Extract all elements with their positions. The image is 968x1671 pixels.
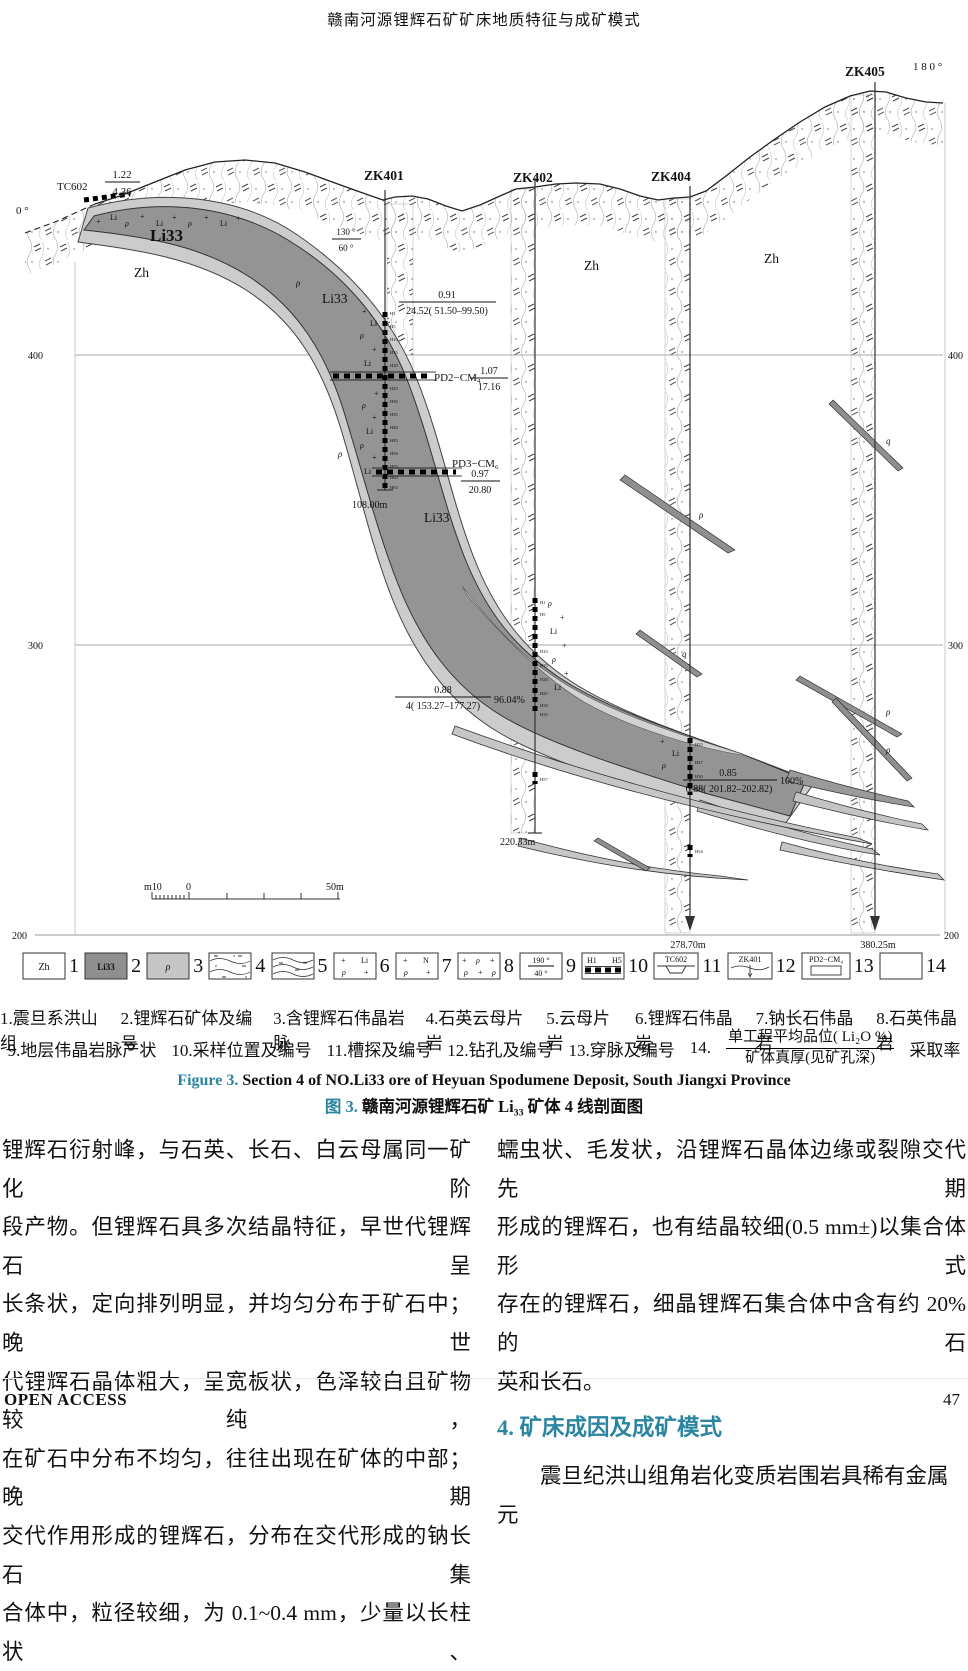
section-heading: 4. 矿床成因及成矿模式 [497,1406,966,1450]
sample-label: H57 [540,777,548,782]
legend-box-label: ZK401 [738,955,761,964]
legend-num: 6 [380,955,390,978]
body-line: 合体中，粒径较细，为 0.1~0.4 mm，少量以长柱状、 [2,1594,471,1671]
ore-symbol: Li [220,219,228,228]
scale-zero-label: 0 [186,882,191,893]
legend-num: 9 [566,955,576,978]
legend-sym: ρ [463,968,468,977]
legend-num: 2 [131,955,141,978]
vein-label-q: q [682,649,687,659]
ore-symbol: Li [156,219,164,228]
legend-box-label: TC602 [665,955,687,964]
scale-bar: m10 0 50m [144,882,344,899]
ore-symbol: + [374,389,379,398]
sample-label: H10 [540,649,548,654]
ore-symbol: Li [370,319,378,328]
legend-sym: + [462,956,467,965]
legend-box-attitude: 190 °40 ° [519,952,563,980]
legend-sym: ρ [403,968,408,977]
sample-label: H15 [540,663,548,668]
vein-label-rho: ρ [885,745,891,755]
sample-label: H15 [390,350,398,355]
sample-label: H27 [695,760,703,765]
page-number: 47 [943,1390,960,1410]
sample-label: H54 [695,849,703,854]
sample-label: H25 [540,691,548,696]
sample-label: H5 [390,324,396,329]
sample-label: H50 [390,451,398,456]
borehole-label-zk404: ZK404 [651,169,691,184]
dip-num: 130 ° [336,227,356,237]
grade-num: 1.22 [112,169,131,181]
body-line: 锂辉石衍射峰，与石英、长石、白云母属同一矿化阶 [2,1131,471,1208]
legend-num: 8 [504,955,514,978]
cross-section-figure: ZK401 ZK402 ZK404 ZK405 TC602 0 ° 1 8 0 … [0,50,968,955]
legend-caption: 11.槽探及编号 [327,1036,433,1061]
sample-label: H5 [540,612,546,617]
rock-column-zk405 [851,95,875,933]
legend-box-label: PD2−CM₄ [809,955,843,964]
vein-label-rho: ρ [698,510,704,520]
ore-symbol: ρ [359,331,364,340]
vein-label-rho: ρ [885,707,891,717]
body-line: 段产物。但锂辉石具多次结晶特征，早世代锂辉石呈 [2,1208,471,1285]
sample-label: H30 [390,399,398,404]
legend-item-8: +ρ+ρ+ρ 8 [457,952,514,980]
legend-frac-suffix: 采取率 [909,1036,960,1061]
body-line: 形成的锂辉石，也有结晶较细(0.5 mm±)以集合体形式 [497,1208,966,1285]
figure-caption-zh: 图 3. 赣南河源锂辉石矿 Li₃₃ 矿体 4 线剖面图 [0,1093,968,1117]
legend-box-albite-pegmatite: +Nρ+ [395,952,439,980]
legend-captions-row2: 9.地层伟晶岩脉产状 10.采样位置及编号 11.槽探及编号 12.钻孔及编号 … [0,1028,968,1068]
legend-sym: Li [361,956,369,965]
ore-symbol: + [372,453,377,462]
vein-label-q: q [886,436,891,446]
legend-item-7: +Nρ+ 7 [395,952,452,980]
legend-row: Zh 1 Li33 2 ρ 3 4 5 +Liρ+ 6 +Nρ+ 7 +ρ+ρ+… [22,952,946,980]
elev-200-left: 200 [12,931,27,942]
legend-box-mica-schist [271,952,315,980]
recovery-pct: 96.04% [494,695,525,706]
legend-caption: 9.地层伟晶岩脉产状 [8,1036,157,1061]
legend-box-drillhole: ZK401 [727,952,773,980]
legend-caption: 10.采样位置及编号 [171,1036,311,1061]
sample-label: H30 [540,703,548,708]
figure-caption-zh-text: 赣南河源锂辉石矿 Li₃₃ 矿体 4 线剖面图 [358,1097,643,1116]
grade-pd3: 0.97 20.80 [461,469,500,496]
legend-box-label: Zh [38,962,49,973]
legend-box-li33: Li33 [84,952,128,980]
legend-num: 12 [776,955,796,978]
legend-item-10: H1H5 10 [581,952,648,980]
ore-label-li33: Li33 [322,291,348,306]
sample-label: H55 [390,464,398,469]
grade-den: 4( 153.27–177.27) [406,701,480,712]
ore-label-li33: Li33 [424,510,450,525]
legend-item-5: 5 [271,952,328,980]
stratum-zh: Zh [584,258,599,273]
legend-caption: 14. [690,1038,711,1058]
ore-symbol: + [172,213,177,222]
ore-symbol: Li [554,683,562,692]
body-line: 交代作用形成的锂辉石，分布在交代形成的钠长石集 [2,1517,471,1594]
ore-symbol: + [562,641,567,650]
ore-symbol: ρ [661,761,666,770]
sample-label: H35 [540,712,548,717]
sample-label: H45 [390,438,398,443]
legend-num: 13 [854,955,874,978]
figure-caption-en-text: Section 4 of NO.Li33 ore of Heyuan Spodu… [238,1072,790,1089]
legend-num: 14 [926,955,946,978]
elev-300-right: 300 [948,641,963,652]
elev-400-left: 400 [28,351,43,362]
ore-symbol: Li [672,749,680,758]
legend-item-4: 4 [208,952,265,980]
legend-frac-top: 190 ° [532,956,549,965]
figure-caption-en: Figure 3. Section 4 of NO.Li33 ore of He… [0,1072,968,1090]
legend-item-14: 14 [879,952,946,980]
legend-sym: + [341,956,346,965]
grade-num: 0.88 [434,685,452,696]
ore-symbol: ρ [359,441,364,450]
grade-den: 24.52( 51.50–99.50) [406,306,488,317]
sample-label: H40 [390,425,398,430]
legend-sym: + [426,968,431,977]
legend-box-grade [879,952,923,980]
body-column-right: 蠕虫状、毛发状，沿锂辉石晶体边缘或裂隙交代先期 形成的锂辉石，也有结晶较细(0.… [497,1131,966,1534]
legend-item-1: Zh 1 [22,952,79,980]
ore-symbol: + [660,737,665,746]
legend-frac-bottom: 40 ° [534,969,547,978]
sample-label: H63 [390,485,398,490]
grade-den: 20.80 [469,485,492,496]
legend-box-adit: PD2−CM₄ [801,952,851,980]
legend-frac-bottom: 矿体真厚(见矿孔深) [745,1050,875,1066]
legend-frac-top: 单工程平均品位( Li₂O %) [726,1028,894,1049]
borehole-label-zk401: ZK401 [364,168,404,183]
depth-zk401: 108.00m [352,500,388,511]
body-line: 震旦纪洪山组角岩化变质岩围岩具稀有金属元 [497,1457,966,1534]
borehole-label-zk402: ZK402 [513,170,553,185]
legend-item-6: +Liρ+ 6 [333,952,390,980]
legend-box-spodumene-pegmatite: +Liρ+ [333,952,377,980]
depth-zk405: 380.25m [860,940,896,951]
ore-symbol: ρ [547,599,552,608]
scale-left-label: m10 [144,882,162,893]
legend-sym: + [403,956,408,965]
ore-symbol: + [372,345,377,354]
ore-symbol: ρ [361,401,366,410]
stratum-zh: Zh [764,251,779,266]
page-title: 赣南河源锂辉石矿矿床地质特征与成矿模式 [0,8,968,30]
sample-labels-zk401: H1 H5 H10 H15 H20 H25 H30 H35 H40 H45 H5… [390,311,398,490]
ore-symbol: + [140,212,145,221]
ore-symbol: Li [364,467,372,476]
legend-num: 4 [255,955,265,978]
body-line: 长条状，定向排列明显，并均匀分布于矿石中；晚世 [2,1285,471,1362]
elev-400-right: 400 [948,351,963,362]
angle-left: 0 ° [16,205,29,217]
grade-num: 0.91 [438,290,456,301]
ore-symbol: + [564,669,569,678]
ore-symbol: ρ [551,655,556,664]
grade-num: 0.85 [719,768,737,779]
sample-label: H60 [390,475,398,480]
ore-symbol: ρ [124,219,129,228]
depth-zk402: 220.33m [500,837,536,848]
ore-symbol: Li [366,427,374,436]
sample-label: H25 [695,742,703,747]
sample-label: H20 [390,363,398,368]
legend-sym: + [478,968,483,977]
legend-num: 3 [193,955,203,978]
sample-label: H10 [390,337,398,342]
legend-sym: ρ [475,956,480,965]
legend-box-quartz-pegmatite: +ρ+ρ+ρ [457,952,501,980]
sample-label: H30 [695,774,703,779]
sample-label: H1 [540,600,546,605]
vein-label-rho: ρ [295,278,301,288]
legend-item-11: TC602 11 [653,952,721,980]
angle-right: 1 8 0 ° [913,61,942,73]
ore-symbol: Li [110,213,118,222]
legend-sym: ρ [491,968,496,977]
sample-label: H35 [390,412,398,417]
legend-sym: ρ [341,968,346,977]
ore-symbol: ρ [187,219,192,228]
recovery-pct: 100% [780,776,803,787]
legend-item-3: ρ 3 [146,952,203,980]
footer-open-access: OPEN ACCESS [4,1390,127,1410]
ore-symbol: + [372,413,377,422]
ore-body [78,194,928,855]
page: { "page": { "header_title": "赣南河源锂辉石矿矿床地… [0,0,968,1412]
ore-symbol: + [560,613,565,622]
legend-sym: H5 [612,956,622,965]
rock-column-zk404 [665,199,690,933]
legend-num: 5 [318,955,328,978]
legend-box-quartz-mica-schist [208,952,252,980]
legend-grade-fraction: 单工程平均品位( Li₂O %)矿体真厚(见矿孔深) [726,1028,894,1068]
legend-num: 1 [69,955,79,978]
sample-label: H25 [390,386,398,391]
legend-box-sampling: H1H5 [581,952,625,980]
footer-rule [0,1378,968,1379]
legend-box-label: ρ [165,962,171,973]
sample-label: H1 [390,311,396,316]
stratum-zh: Zh [134,265,149,280]
body-line: 存在的锂辉石，细晶锂辉石集合体中含有约 20%的石 [497,1285,966,1362]
sample-label: H20 [540,677,548,682]
legend-item-13: PD2−CM₄ 13 [801,952,874,980]
grade-num: 1.07 [480,366,498,377]
grade-den: 4.36 [112,186,132,198]
vein-label-rho: ρ [337,449,343,459]
grade-num: 0.97 [471,469,489,480]
figure-caption-en-label: Figure 3. [177,1072,238,1089]
legend-sym: + [490,956,495,965]
legend-box-zh: Zh [22,952,66,980]
ore-symbol: Li [364,359,372,368]
legend-num: 7 [442,955,452,978]
legend-num: 10 [628,955,648,978]
legend-box-label: Li33 [97,962,115,972]
body-line: 蠕虫状、毛发状，沿锂辉石晶体边缘或裂隙交代先期 [497,1131,966,1208]
legend-sym: + [364,968,369,977]
borehole-label-zk405: ZK405 [845,64,885,79]
elev-200-right: 200 [944,931,959,942]
grade-zk401: 0.91 24.52( 51.50–99.50) [399,290,496,317]
legend-item-9: 190 °40 ° 9 [519,952,576,980]
body-line: 在矿石中分布不均匀，往往出现在矿体的中部；晚期 [2,1440,471,1517]
trench-label-tc602: TC602 [57,181,88,193]
dip-den: 60 ° [339,243,354,253]
legend-caption: 13.穿脉及编号 [568,1036,674,1061]
ore-symbol: + [362,307,367,316]
legend-sym: H1 [587,956,597,965]
legend-sym: N [423,956,429,965]
depth-zk404: 278.70m [670,940,706,951]
ore-label-li33: Li33 [150,226,183,245]
legend-item-2: Li33 2 [84,952,141,980]
ore-symbol: + [204,213,209,222]
scale-right-label: 50m [326,882,344,893]
figure-caption-zh-label: 图 3. [325,1097,358,1116]
legend-caption: 12.钻孔及编号 [447,1036,553,1061]
sample-label: H32 [695,786,703,791]
legend-box-rho: ρ [146,952,190,980]
elev-300-left: 300 [28,641,43,652]
legend-num: 11 [702,955,721,978]
body-line: 英和长石。 [497,1363,966,1402]
ore-symbol: Li [550,627,558,636]
ore-symbol: + [96,217,101,226]
grade-den: 17.16 [478,382,501,393]
legend-item-12: ZK401 12 [727,952,796,980]
ore-symbol: + [236,214,241,223]
legend-box-trench: TC602 [653,952,699,980]
